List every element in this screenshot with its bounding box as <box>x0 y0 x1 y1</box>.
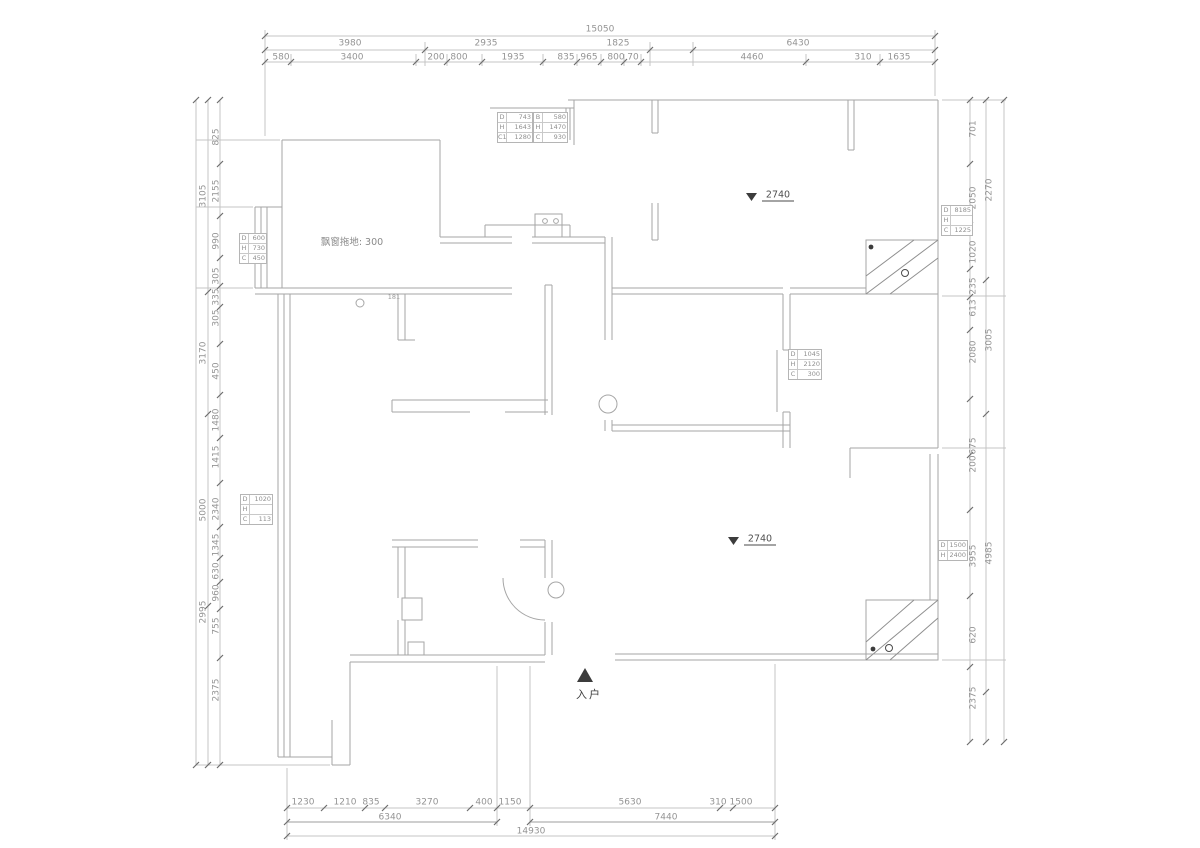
dim-label-top: 2935 <box>475 40 498 49</box>
dim-label-bottom: 1230 <box>292 799 315 808</box>
hatch-marks <box>866 240 938 660</box>
tag-right-top: D8185HC1225 <box>941 205 973 236</box>
entry-arrow-icon <box>577 668 593 682</box>
dim-label-right: 2080 <box>970 341 979 364</box>
entry-label: 入户 <box>576 686 602 702</box>
dim-label-left: 960 <box>213 584 222 601</box>
dim-label-left: 305 <box>213 267 222 284</box>
dim-label-right: 4985 <box>986 542 995 565</box>
dim-label-left: 2375 <box>213 679 222 702</box>
dim-label-right: 2270 <box>986 179 995 202</box>
dim-label-left: 1415 <box>213 446 222 469</box>
dim-label-left: 2340 <box>213 498 222 521</box>
dim-label-top: 3980 <box>339 40 362 49</box>
dim-label-right: 3005 <box>986 329 995 352</box>
dim-label-right: 701 <box>970 120 979 137</box>
level-symbols <box>728 193 794 545</box>
dim-label-left: 825 <box>213 128 222 145</box>
dim-label-bottom: 5630 <box>619 799 642 808</box>
ceiling-height-label: 2740 <box>766 190 790 201</box>
dim-label-left: 3170 <box>200 342 209 365</box>
dim-label-top: 1825 <box>607 40 630 49</box>
dim-label-bottom: 1500 <box>730 799 753 808</box>
dim-label-top: 1935 <box>502 54 525 63</box>
dim-label-left: 990 <box>213 232 222 249</box>
tag-kitchen-right: B580H1470C930 <box>533 112 568 143</box>
dim-label-right: 1020 <box>970 241 979 264</box>
tag-kitchen-left: D743H1643C11280 <box>497 112 533 143</box>
tag-left-lower: D1020HC113 <box>240 494 273 525</box>
dim-label-top: 1635 <box>888 54 911 63</box>
dim-label-left: 450 <box>213 362 222 379</box>
dim-label-left: 335 <box>213 288 222 305</box>
dim-label-right: 620 <box>970 626 979 643</box>
dim-label-bottom: 400 <box>475 799 492 808</box>
dim-label-top: 965 <box>580 54 597 63</box>
dim-label-top: 310 <box>854 54 871 63</box>
tag-right-lower: D1500H2400 <box>938 540 968 561</box>
dim-label-left: 5000 <box>200 499 209 522</box>
dim-label-bottom: 1150 <box>499 799 522 808</box>
dim-label-left: 2995 <box>200 601 209 624</box>
dim-label-top: 800 <box>450 54 467 63</box>
dim-label-right: 200 <box>970 455 979 472</box>
dim-label-right: 3955 <box>970 545 979 568</box>
dim-label-top: 6430 <box>787 40 810 49</box>
dim-label-top: 4460 <box>741 54 764 63</box>
dim-label-bottom: 14930 <box>517 828 546 837</box>
small-mark-label: 181 <box>388 293 400 301</box>
dim-label-top: 835 <box>557 54 574 63</box>
floorplan-drawing <box>0 0 1200 848</box>
dim-label-left: 2155 <box>213 180 222 203</box>
dim-label-bottom: 7440 <box>655 814 678 823</box>
dimension-chains <box>193 30 1007 840</box>
dim-label-bottom: 1210 <box>334 799 357 808</box>
dim-label-top: 200 <box>427 54 444 63</box>
dim-label-bottom: 3270 <box>416 799 439 808</box>
bay-window-note: 飘窗拖地: 300 <box>321 234 383 248</box>
dim-label-top: 15050 <box>586 26 615 35</box>
dim-label-left: 305 <box>213 309 222 326</box>
dim-label-bottom: 835 <box>362 799 379 808</box>
tag-mid-wall: D1045H2120C300 <box>788 349 822 380</box>
walls <box>255 100 938 765</box>
ceiling-height-label: 2740 <box>748 534 772 545</box>
tag-left-bay: D600H730C450 <box>239 233 267 264</box>
dim-label-right: 675 <box>970 437 979 454</box>
dim-label-right: 613 <box>970 299 979 316</box>
dim-label-top: 70 <box>627 54 638 63</box>
dim-label-left: 630 <box>213 562 222 579</box>
dim-label-right: 235 <box>970 277 979 294</box>
dim-label-top: 3400 <box>341 54 364 63</box>
dim-label-bottom: 6340 <box>379 814 402 823</box>
dim-label-left: 1480 <box>213 409 222 432</box>
floorplan-page: 1505039802935182564305803400200800193583… <box>0 0 1200 848</box>
dim-label-right: 2375 <box>970 687 979 710</box>
dim-label-top: 580 <box>272 54 289 63</box>
dim-label-left: 1345 <box>213 534 222 557</box>
dim-label-top: 800 <box>607 54 624 63</box>
dim-label-left: 755 <box>213 617 222 634</box>
dim-label-left: 3105 <box>200 185 209 208</box>
dim-label-bottom: 310 <box>709 799 726 808</box>
